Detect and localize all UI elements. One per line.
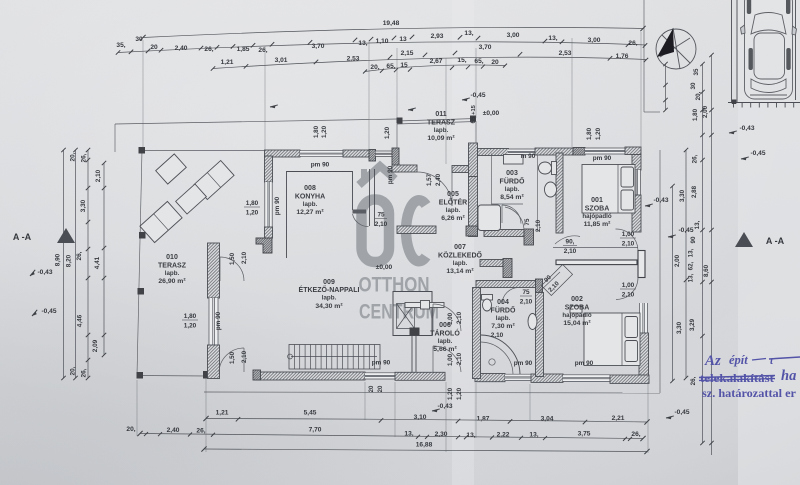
svg-text:4,46: 4,46	[77, 314, 84, 327]
svg-text:-0,45: -0,45	[41, 308, 56, 315]
svg-text:65: 65	[470, 116, 477, 123]
svg-text:pm 90: pm 90	[575, 360, 594, 367]
svg-text:15,: 15,	[457, 57, 466, 64]
svg-text:FÜRDŐ: FÜRDŐ	[500, 177, 525, 186]
svg-text:2,53: 2,53	[347, 56, 360, 63]
svg-text:lapb.: lapb.	[434, 127, 449, 134]
svg-text:26,: 26,	[631, 431, 640, 438]
svg-text:005: 005	[447, 191, 459, 198]
svg-text:1,80: 1,80	[313, 125, 320, 138]
svg-text:2,10: 2,10	[375, 221, 388, 228]
svg-text:7,30 m²: 7,30 m²	[491, 323, 515, 330]
svg-text:20,: 20,	[370, 64, 379, 71]
svg-text:1,57: 1,57	[426, 173, 433, 186]
svg-text:-0,43: -0,43	[37, 269, 52, 276]
svg-text:2,00: 2,00	[674, 254, 681, 267]
svg-text:1,00: 1,00	[447, 353, 454, 366]
svg-text:1,50: 1,50	[229, 252, 236, 265]
svg-text:1,80: 1,80	[586, 127, 593, 140]
svg-text:lapb.: lapb.	[438, 338, 453, 345]
svg-text:lapb.: lapb.	[496, 315, 511, 322]
svg-text:2,22: 2,22	[497, 432, 510, 439]
svg-text:hajópadló: hajópadló	[582, 213, 611, 220]
svg-text:16,88: 16,88	[416, 442, 433, 449]
svg-text:-0,45: -0,45	[750, 150, 765, 157]
svg-text:8,54 m²: 8,54 m²	[500, 194, 524, 201]
svg-text:lapb.: lapb.	[446, 207, 461, 214]
svg-text:26,: 26,	[81, 368, 88, 377]
svg-text:8,20: 8,20	[66, 254, 73, 267]
svg-text:1,10: 1,10	[376, 38, 389, 45]
svg-text:3,00: 3,00	[507, 32, 520, 39]
svg-text:lapb.: lapb.	[303, 201, 318, 208]
svg-text:1,20: 1,20	[246, 210, 259, 217]
svg-text:009: 009	[323, 279, 335, 286]
svg-text:2,40: 2,40	[435, 173, 442, 186]
svg-text:lapb.: lapb.	[165, 270, 180, 277]
svg-text:8,60: 8,60	[703, 264, 710, 277]
svg-text:8,90: 8,90	[55, 253, 62, 266]
svg-text:ha: ha	[781, 368, 796, 384]
svg-text:hajópadló: hajópadló	[562, 312, 591, 319]
svg-text:1,20: 1,20	[321, 125, 328, 138]
svg-text:SZOBA: SZOBA	[565, 305, 590, 312]
svg-text:-0,45: -0,45	[678, 227, 693, 234]
svg-text:1,20: 1,20	[447, 387, 454, 400]
svg-text:5,45: 5,45	[304, 410, 317, 417]
svg-text:2,10: 2,10	[622, 292, 635, 299]
svg-text:2,10: 2,10	[520, 299, 533, 306]
svg-text:1,80: 1,80	[246, 200, 259, 207]
svg-text:3,00: 3,00	[588, 37, 601, 44]
svg-text:3,70: 3,70	[479, 44, 492, 51]
svg-text:13,: 13,	[688, 248, 695, 257]
svg-text:A -A: A -A	[13, 232, 32, 242]
svg-text:3,01: 3,01	[275, 57, 288, 64]
svg-text:13,: 13,	[464, 30, 473, 37]
svg-text:20,: 20,	[70, 152, 77, 161]
svg-text:2,40: 2,40	[167, 427, 180, 434]
svg-text:A -A: A -A	[766, 236, 785, 246]
svg-text:3,04: 3,04	[541, 416, 554, 423]
svg-text:1,21: 1,21	[221, 59, 234, 66]
svg-text:10,09 m²: 10,09 m²	[427, 135, 455, 142]
svg-text:13,: 13,	[404, 431, 413, 438]
svg-text:1,20: 1,20	[384, 126, 391, 139]
svg-text:pm 90: pm 90	[215, 311, 222, 330]
svg-text:90: 90	[690, 236, 697, 243]
svg-text:19,48: 19,48	[383, 20, 400, 27]
svg-text:2,21: 2,21	[612, 415, 625, 422]
svg-text:1,80: 1,80	[692, 108, 699, 121]
svg-text:2,67: 2,67	[430, 58, 443, 65]
svg-text:20: 20	[369, 385, 375, 392]
svg-text:KÖZLEKEDŐ: KÖZLEKEDŐ	[438, 251, 483, 260]
svg-text:1,20: 1,20	[456, 387, 463, 400]
svg-text:3,30: 3,30	[676, 321, 683, 334]
svg-text:1,20: 1,20	[595, 127, 602, 140]
svg-text:7,70: 7,70	[309, 427, 322, 434]
svg-text:26,: 26,	[76, 251, 83, 260]
svg-text:2,10: 2,10	[491, 332, 504, 339]
svg-text:-0,45: -0,45	[470, 92, 485, 99]
svg-text:001: 001	[591, 197, 603, 204]
svg-text:lapb.: lapb.	[322, 295, 337, 302]
svg-text:13,: 13,	[688, 273, 695, 282]
svg-text:2,10: 2,10	[241, 251, 248, 264]
svg-text:TERASZ: TERASZ	[158, 263, 187, 270]
svg-text:4,41: 4,41	[94, 256, 101, 269]
svg-text:34,30 m²: 34,30 m²	[315, 303, 343, 310]
svg-text:lapb.: lapb.	[453, 260, 468, 267]
svg-text:pm 90: pm 90	[274, 196, 281, 215]
svg-text:SZOBA: SZOBA	[585, 206, 610, 213]
svg-text:11,85 m²: 11,85 m²	[584, 221, 612, 228]
svg-text:pm 90: pm 90	[593, 155, 612, 162]
svg-text:20,: 20,	[695, 91, 702, 100]
svg-text:-0,45: -0,45	[674, 409, 689, 416]
svg-text:pm 90: pm 90	[387, 165, 394, 184]
svg-text:002: 002	[571, 296, 583, 303]
svg-text:35: 35	[693, 68, 700, 75]
svg-text:2,53: 2,53	[559, 50, 572, 57]
svg-text:FÜRDŐ: FÜRDŐ	[491, 306, 516, 315]
svg-text:3,30: 3,30	[679, 189, 686, 202]
svg-text:2,10: 2,10	[535, 219, 542, 232]
svg-text:62,: 62,	[688, 261, 695, 270]
svg-text:telekalakítást: telekalakítást	[700, 371, 774, 385]
svg-text:13,14 m²: 13,14 m²	[446, 268, 474, 275]
svg-text:1,76: 1,76	[616, 53, 629, 60]
svg-text:1,21: 1,21	[216, 410, 229, 417]
svg-text:75: 75	[524, 218, 531, 225]
svg-text:2,15: 2,15	[401, 50, 414, 57]
svg-text:1,85: 1,85	[237, 46, 250, 53]
svg-text:12,27 m²: 12,27 m²	[296, 209, 324, 216]
svg-text:90,: 90,	[566, 239, 575, 246]
svg-text:1,50: 1,50	[229, 351, 236, 364]
svg-text:003: 003	[506, 170, 518, 177]
svg-text:26,: 26,	[690, 376, 697, 385]
svg-text:26,90 m²: 26,90 m²	[158, 278, 186, 285]
svg-text:13,: 13,	[358, 40, 367, 47]
svg-text:+15: +15	[471, 104, 477, 115]
svg-text:-0,43: -0,43	[739, 125, 754, 132]
svg-text:pm 90: pm 90	[514, 360, 533, 367]
svg-text:sz. határozattal er: sz. határozattal er	[702, 386, 797, 400]
svg-text:3,75: 3,75	[578, 431, 591, 438]
svg-text:2,10: 2,10	[95, 169, 102, 182]
svg-text:13,: 13,	[529, 432, 538, 439]
svg-text:30: 30	[135, 36, 143, 43]
svg-text:pm 90: pm 90	[372, 360, 391, 367]
svg-text:20: 20	[491, 59, 499, 66]
svg-text:2,00: 2,00	[702, 105, 709, 118]
svg-text:007: 007	[454, 244, 466, 251]
svg-text:26,: 26,	[196, 428, 205, 435]
svg-text:ÉTKEZŐ-NAPPALI: ÉTKEZŐ-NAPPALI	[299, 285, 360, 294]
svg-text:20,: 20,	[70, 366, 77, 375]
svg-text:TÁROLÓ: TÁROLÓ	[430, 329, 460, 338]
svg-text:Az: Az	[704, 353, 721, 369]
svg-text:±0,00: ±0,00	[483, 110, 500, 117]
svg-text:5,66 m²: 5,66 m²	[433, 346, 457, 353]
svg-text:lapb.: lapb.	[505, 186, 520, 193]
svg-text:1,00: 1,00	[622, 282, 635, 289]
svg-text:3,70: 3,70	[312, 43, 325, 50]
svg-text:13: 13	[399, 36, 407, 43]
svg-text:-0,43: -0,43	[653, 197, 668, 204]
svg-text:KONYHA: KONYHA	[295, 194, 325, 201]
svg-text:épít: épít	[729, 353, 748, 367]
svg-text:1,00: 1,00	[447, 312, 454, 325]
svg-text:2,10: 2,10	[564, 248, 577, 255]
svg-text:2,93: 2,93	[431, 33, 444, 40]
svg-text:26,: 26,	[204, 46, 213, 53]
svg-text:3,29: 3,29	[689, 318, 696, 331]
svg-text:2,40: 2,40	[175, 45, 188, 52]
svg-text:26,: 26,	[692, 154, 699, 163]
svg-text:2,10: 2,10	[241, 350, 248, 363]
svg-text:75: 75	[522, 289, 530, 296]
svg-text:2,88: 2,88	[691, 185, 698, 198]
svg-text:004: 004	[497, 299, 509, 306]
svg-text:1,00: 1,00	[622, 231, 635, 238]
svg-text:13,: 13,	[548, 35, 557, 42]
svg-text:26,: 26,	[81, 153, 88, 162]
svg-text:OTTHON: OTTHON	[359, 274, 430, 297]
svg-text:15,04 m²: 15,04 m²	[563, 320, 591, 327]
svg-text:3,30: 3,30	[80, 199, 87, 212]
svg-text:35,: 35,	[116, 42, 125, 49]
svg-text:m 90: m 90	[521, 153, 536, 160]
svg-text:ELŐTÉR: ELŐTÉR	[439, 198, 467, 207]
svg-text:2,10: 2,10	[622, 241, 635, 248]
svg-text:±0,00: ±0,00	[376, 264, 393, 271]
svg-text:20: 20	[150, 44, 158, 51]
svg-text:26,: 26,	[258, 47, 267, 54]
svg-text:65,: 65,	[386, 63, 395, 70]
svg-text:-0,43: -0,43	[437, 403, 452, 410]
svg-text:2,10: 2,10	[456, 352, 463, 365]
svg-text:011: 011	[435, 111, 446, 118]
svg-text:1,87: 1,87	[477, 416, 490, 423]
svg-text:1,80: 1,80	[184, 313, 197, 320]
svg-text:2,10: 2,10	[456, 311, 463, 324]
svg-text:pm 90: pm 90	[311, 162, 330, 169]
svg-text:30: 30	[690, 82, 697, 89]
svg-text:2,09: 2,09	[92, 339, 99, 352]
svg-text:20,: 20,	[126, 426, 135, 433]
svg-text:TERASZ: TERASZ	[427, 120, 456, 127]
svg-text:010: 010	[166, 254, 178, 261]
svg-text:008: 008	[304, 185, 316, 192]
svg-text:20: 20	[378, 385, 384, 392]
svg-text:13,: 13,	[694, 220, 701, 229]
svg-text:3,10: 3,10	[414, 414, 427, 421]
svg-text:75: 75	[377, 212, 385, 219]
svg-text:15: 15	[400, 62, 408, 69]
svg-text:1,20: 1,20	[184, 323, 197, 330]
svg-text:6,26 m²: 6,26 m²	[441, 215, 465, 222]
